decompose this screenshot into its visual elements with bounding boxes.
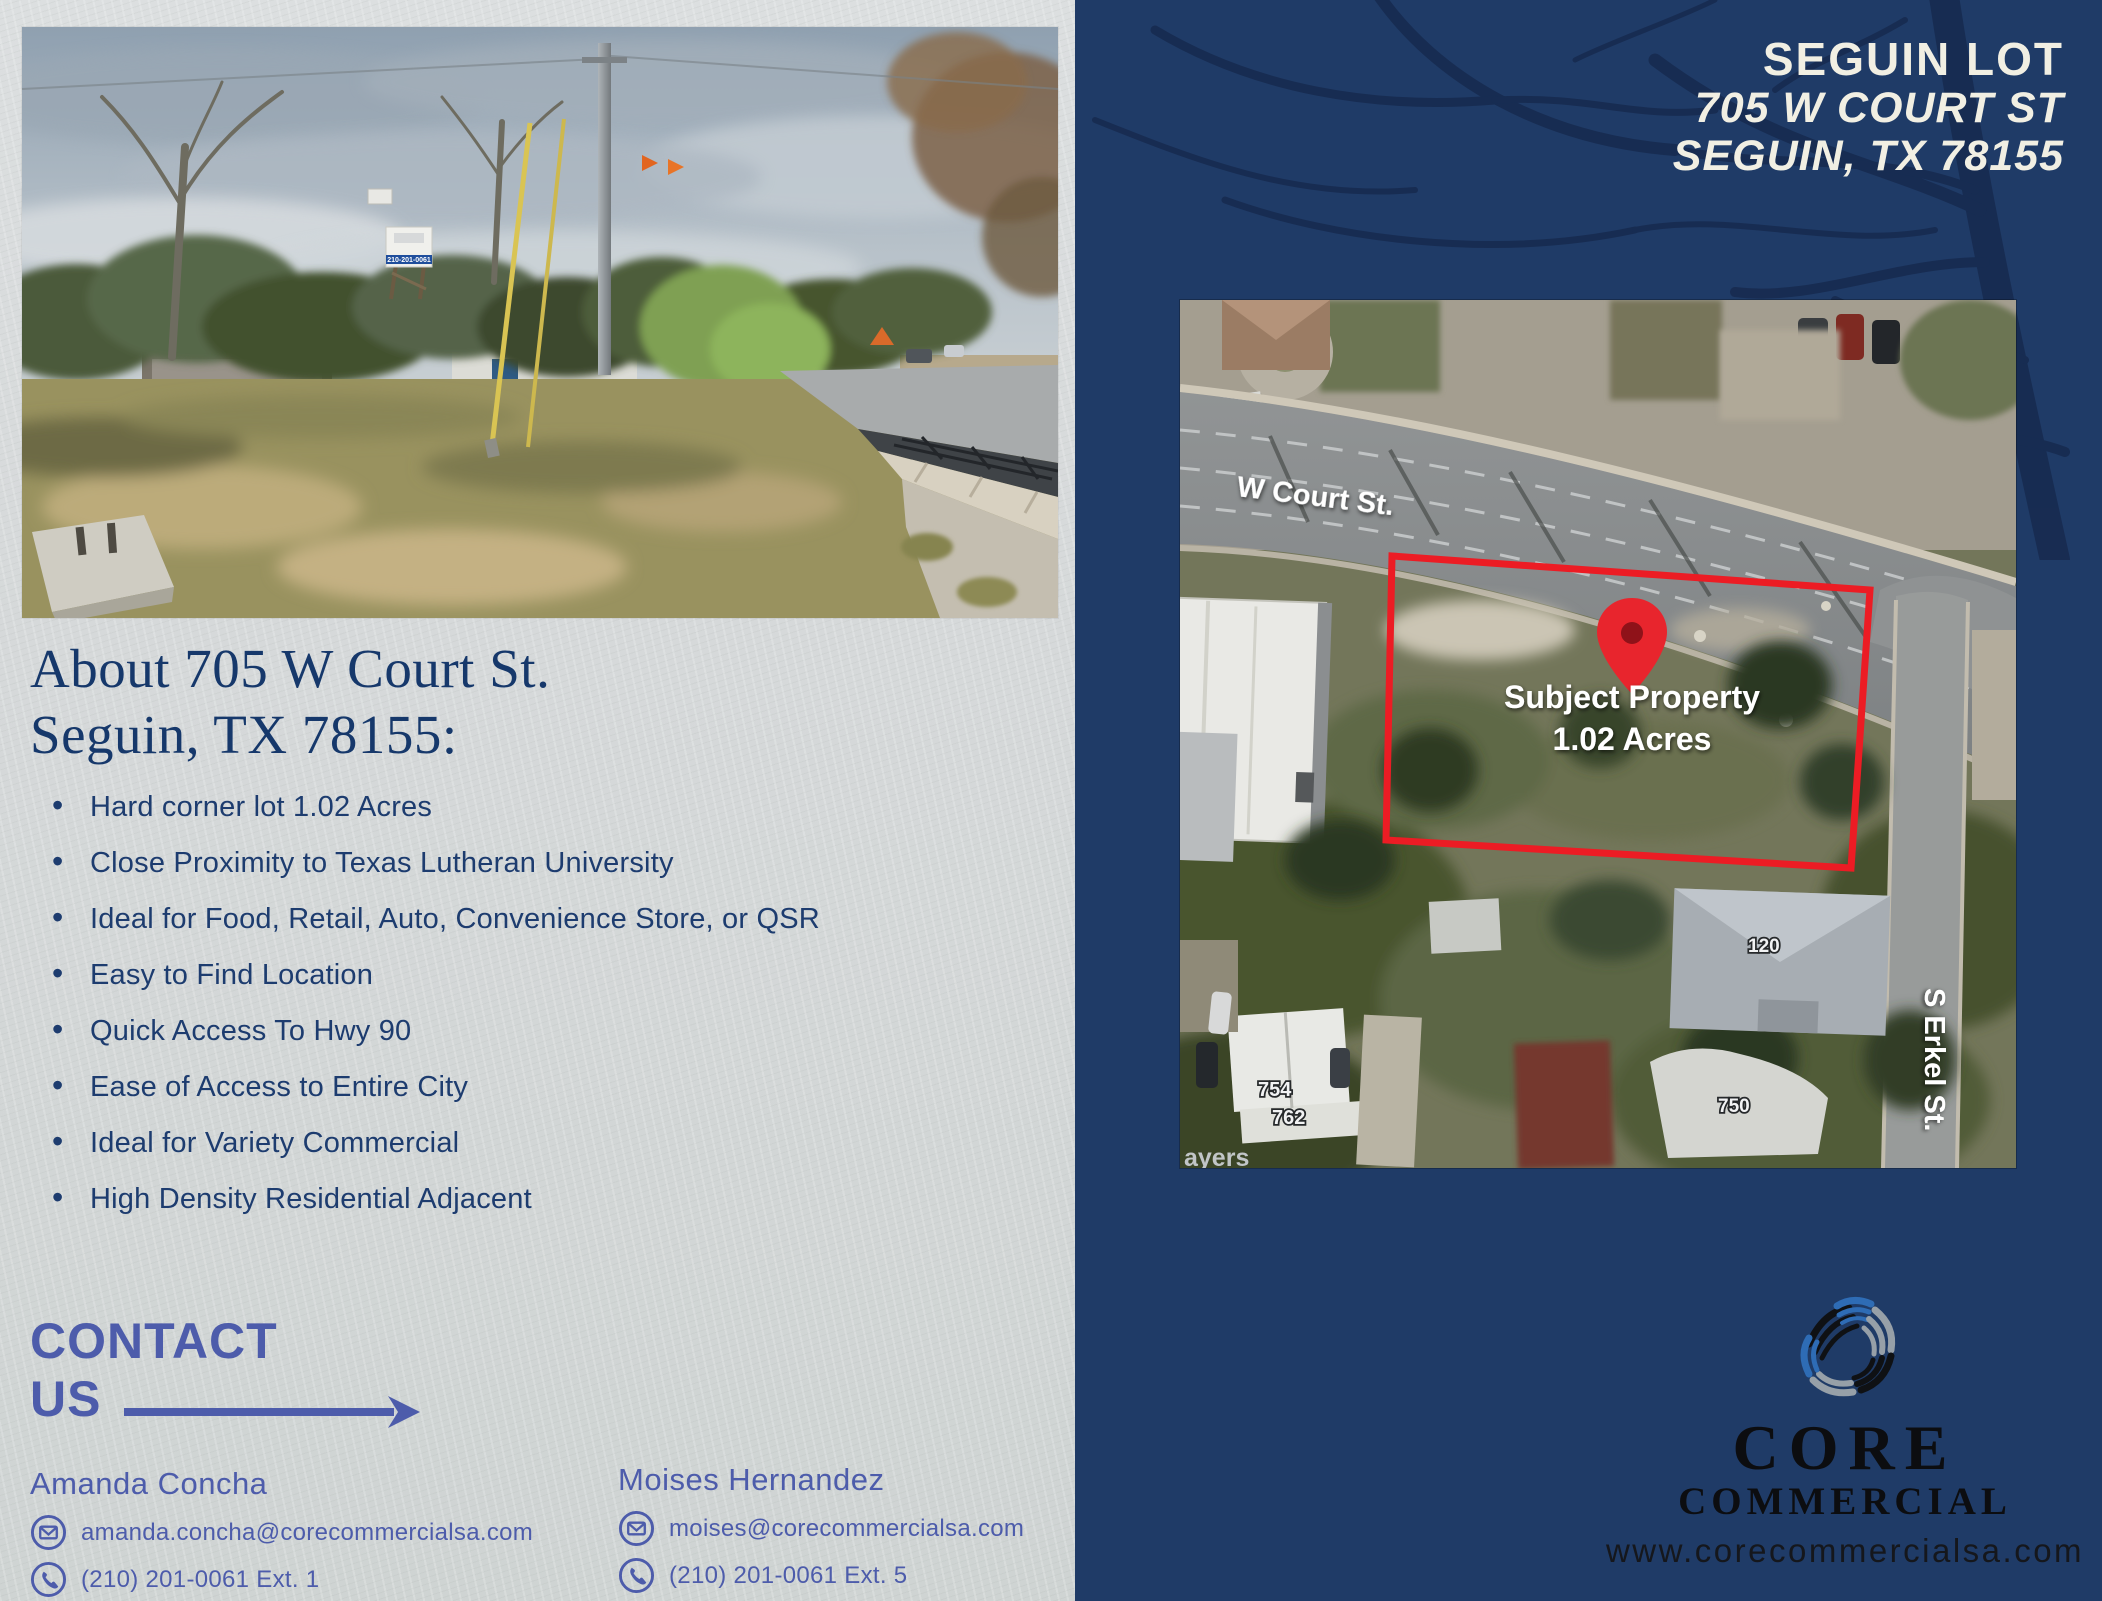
map-house — [1670, 888, 1891, 1035]
about-heading-line1: About 705 W Court St. — [30, 636, 1030, 702]
map-layers-partial-label: ayers — [1184, 1144, 1249, 1168]
hero-title-line3: SEGUIN, TX 78155 — [1673, 132, 2064, 180]
email-icon — [618, 1510, 655, 1547]
right-panel: SEGUIN LOT 705 W COURT ST SEGUIN, TX 781… — [1075, 0, 2102, 1601]
property-photo-illustration: 210-201-0061 — [22, 27, 1058, 618]
email-icon — [30, 1514, 67, 1551]
phone-icon — [30, 1561, 67, 1598]
highlight-item: Quick Access To Hwy 90 — [44, 1016, 1024, 1046]
agent-card-amanda: Amanda Concha amanda.concha@corecommerci… — [30, 1466, 590, 1601]
agent-email: moises@corecommercialsa.com — [669, 1515, 1024, 1543]
highlight-item: Close Proximity to Texas Lutheran Univer… — [44, 848, 1024, 878]
hero-title-line2: 705 W COURT ST — [1673, 84, 2064, 132]
hero-title-line1: SEGUIN LOT — [1673, 34, 2064, 84]
aerial-map-illustration: W Court St. Subject Property 1.02 Acres … — [1180, 300, 2016, 1168]
phone-icon — [618, 1557, 655, 1594]
property-photo: 210-201-0061 — [22, 27, 1058, 618]
highlight-item: Easy to Find Location — [44, 960, 1024, 990]
house-number: 120 — [1748, 936, 1780, 957]
utility-pole — [598, 43, 611, 375]
contact-heading-line1: CONTACT — [30, 1312, 278, 1370]
map-house — [1514, 1040, 1614, 1168]
agent-phone: (210) 201-0061 Ext. 1 — [81, 1566, 319, 1594]
flyer-page: 210-201-0061 About 705 W Court St. Segui… — [0, 0, 2102, 1601]
side-street-label: S Erkel St. — [1918, 988, 1950, 1131]
house-number: 750 — [1718, 1096, 1750, 1117]
website-link[interactable]: www.corecommercialsa.com — [1580, 1532, 2102, 1570]
hero-title: SEGUIN LOT 705 W COURT ST SEGUIN, TX 781… — [1673, 34, 2064, 180]
left-panel: 210-201-0061 About 705 W Court St. Segui… — [0, 0, 1075, 1601]
logo-wordmark-core: CORE — [1580, 1416, 2102, 1480]
subject-acres-label: 1.02 Acres — [1553, 721, 1712, 757]
highlight-item: Ideal for Variety Commercial — [44, 1128, 1024, 1158]
highlight-item: Ideal for Food, Retail, Auto, Convenienc… — [44, 904, 1024, 934]
agent-email-row[interactable]: amanda.concha@corecommercialsa.com — [30, 1514, 590, 1551]
map-building — [1180, 598, 1332, 865]
aerial-map: W Court St. Subject Property 1.02 Acres … — [1180, 300, 2016, 1168]
highlight-item: Ease of Access to Entire City — [44, 1072, 1024, 1102]
brand-logo: CORE COMMERCIAL www.corecommercialsa.com — [1580, 1282, 2102, 1570]
about-heading-line2: Seguin, TX 78155: — [30, 702, 1030, 768]
agent-phone: (210) 201-0061 Ext. 5 — [669, 1562, 907, 1590]
house-number: 754 — [1258, 1079, 1292, 1101]
sign-phone-text: 210-201-0061 — [387, 257, 431, 264]
about-heading: About 705 W Court St. Seguin, TX 78155: — [30, 636, 1030, 768]
core-commercial-logo-icon — [1779, 1282, 1911, 1414]
highlight-item: Hard corner lot 1.02 Acres — [44, 792, 1024, 822]
property-highlights-list: Hard corner lot 1.02 Acres Close Proximi… — [44, 792, 1024, 1240]
house-number: 762 — [1272, 1107, 1305, 1129]
agent-email: amanda.concha@corecommercialsa.com — [81, 1519, 533, 1547]
agent-name: Amanda Concha — [30, 1466, 590, 1502]
agent-phone-row[interactable]: (210) 201-0061 Ext. 1 — [30, 1561, 590, 1598]
subject-property-label: Subject Property — [1504, 679, 1760, 715]
logo-wordmark-commercial: COMMERCIAL — [1580, 1480, 2102, 1524]
highlight-item: High Density Residential Adjacent — [44, 1184, 1024, 1214]
arrow-right-icon — [122, 1388, 422, 1432]
